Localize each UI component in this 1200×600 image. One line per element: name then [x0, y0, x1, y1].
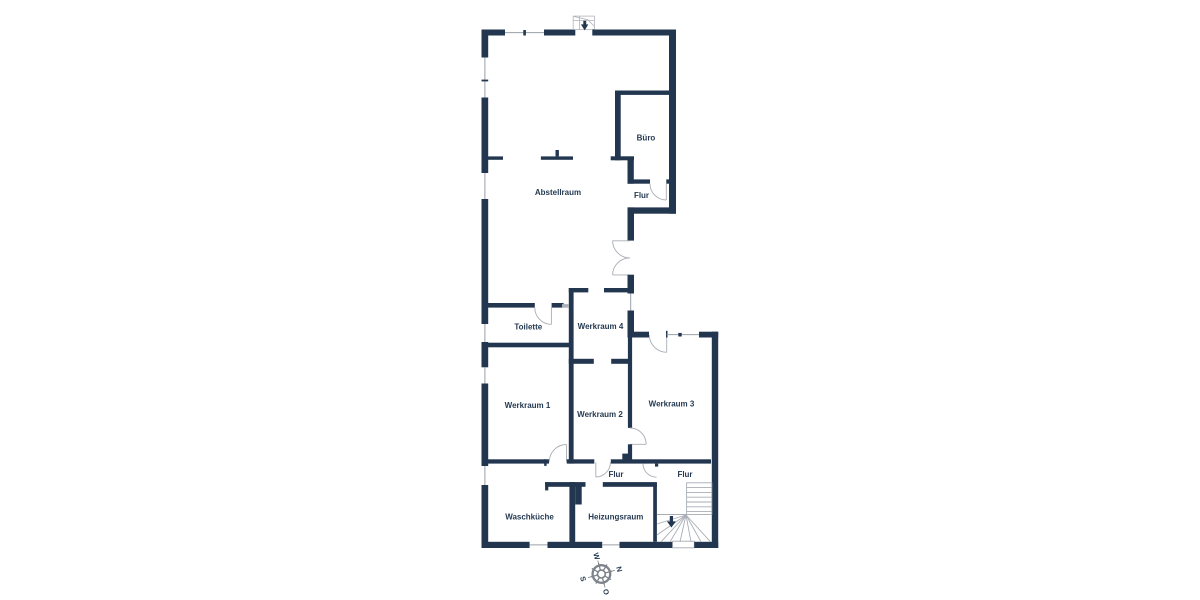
svg-text:Flur: Flur [608, 470, 623, 479]
svg-text:Werkraum 2: Werkraum 2 [577, 410, 623, 419]
svg-text:Waschküche: Waschküche [505, 513, 554, 522]
svg-text:Heizungsraum: Heizungsraum [588, 513, 643, 522]
svg-text:Werkraum 4: Werkraum 4 [578, 322, 624, 331]
svg-text:Flur: Flur [634, 191, 649, 200]
svg-text:Abstellraum: Abstellraum [535, 188, 581, 197]
svg-text:Werkraum 3: Werkraum 3 [649, 400, 695, 409]
svg-text:Werkraum 1: Werkraum 1 [505, 401, 551, 410]
svg-text:Flur: Flur [677, 470, 692, 479]
svg-text:Toilette: Toilette [514, 322, 542, 331]
svg-text:Büro: Büro [637, 134, 656, 143]
